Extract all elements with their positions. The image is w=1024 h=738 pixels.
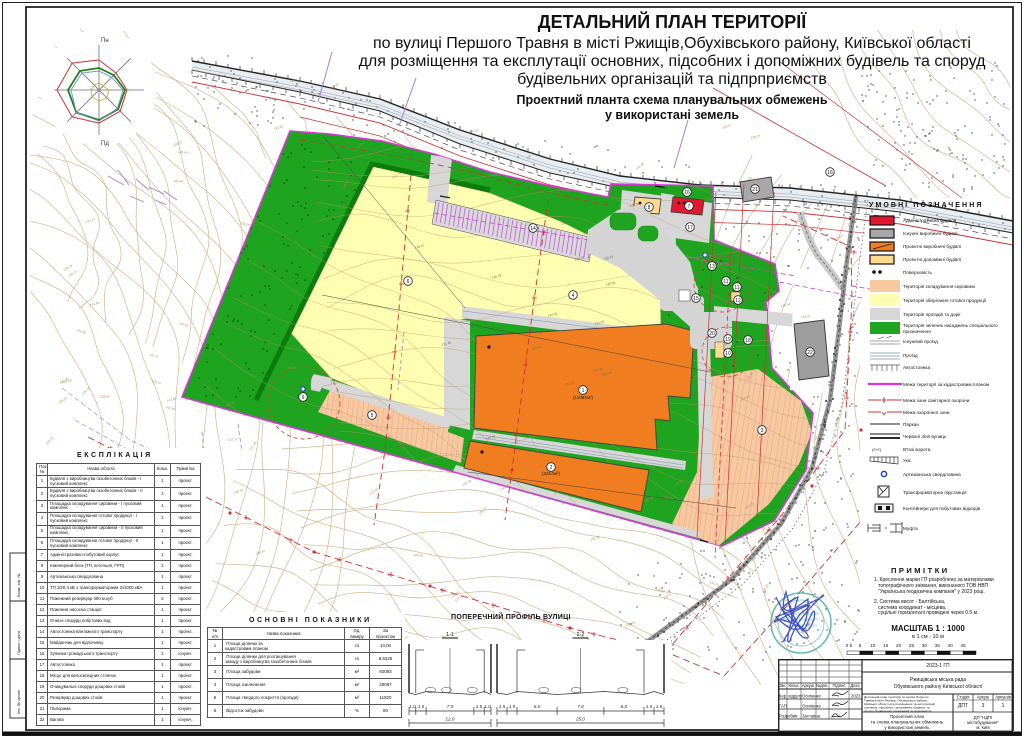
svg-text:Аркуш: Аркуш: [802, 683, 815, 688]
svg-text:137.21: 137.21: [149, 353, 160, 359]
svg-text:Територія проїздів та доріг: Територія проїздів та доріг: [903, 312, 961, 317]
svg-text:Підпис і дата: Підпис і дата: [16, 630, 21, 655]
svg-text:128.54: 128.54: [833, 233, 844, 242]
svg-text:132.30: 132.30: [368, 487, 379, 496]
svg-text:Територія складування сировини: Територія складування сировини: [903, 284, 975, 289]
svg-text:Зм.: Зм.: [779, 683, 786, 688]
svg-text:2: 2: [550, 465, 553, 471]
svg-text:1.5: 1.5: [656, 704, 663, 709]
svg-text:15: 15: [693, 296, 699, 302]
svg-text:137.75: 137.75: [228, 437, 238, 442]
svg-text:7.0: 7.0: [447, 704, 454, 709]
svg-text:Територія зберігання готової п: Територія зберігання готової продукції: [903, 298, 987, 303]
svg-text:Ржищівська міська рада: Ржищівська міська рада: [910, 677, 966, 683]
svg-text:140.77: 140.77: [68, 270, 79, 278]
svg-text:129.44: 129.44: [173, 179, 183, 184]
svg-text:м. Київ: м. Київ: [976, 725, 990, 730]
svg-text:129.73: 129.73: [63, 264, 74, 272]
svg-text:7.0: 7.0: [577, 704, 584, 709]
svg-text:4: 4: [572, 293, 575, 299]
svg-text:138.76: 138.76: [233, 488, 244, 495]
svg-text:В'їзні ворота: В'їзні ворота: [903, 447, 931, 452]
svg-text:Територія зелених насаджень сп: Територія зелених насаджень спеціального: [903, 323, 998, 328]
svg-text:129.14: 129.14: [151, 379, 162, 385]
svg-text:10: 10: [870, 643, 876, 649]
svg-text:Існуючі виробничі будівлі: Існуючі виробничі будівлі: [903, 231, 957, 236]
svg-text:Осипенко: Осипенко: [802, 704, 821, 709]
svg-text:22: 22: [807, 350, 813, 356]
svg-text:Адміністративна будівля: Адміністративна будівля: [903, 218, 957, 223]
svg-text:Контейнери для побутових відхо: Контейнери для побутових відходів: [903, 505, 981, 511]
svg-text:15: 15: [883, 643, 889, 649]
svg-text:Розробив: Розробив: [779, 714, 798, 719]
svg-text:ГАП: ГАП: [779, 704, 787, 709]
svg-text:Взам. інв. №: Взам. інв. №: [16, 574, 21, 597]
svg-text:13: 13: [709, 264, 715, 270]
svg-text:3: 3: [982, 703, 985, 709]
svg-text:1.0: 1.0: [409, 704, 416, 709]
svg-text:145.43: 145.43: [178, 150, 188, 155]
svg-text:Пд: Пд: [101, 141, 109, 147]
svg-text:6.0: 6.0: [621, 704, 628, 709]
svg-text:Трансформаторна підстанція: Трансформаторна підстанція: [903, 490, 967, 495]
svg-text:128.14: 128.14: [173, 139, 184, 147]
svg-text:133.61: 133.61: [721, 123, 732, 130]
svg-text:125.70: 125.70: [750, 134, 761, 140]
svg-text:6: 6: [407, 279, 410, 285]
svg-text:16: 16: [684, 190, 690, 196]
svg-text:споруд будівельних організацій: споруд будівельних організацій та підпри…: [864, 709, 932, 713]
svg-text:Пн: Пн: [101, 38, 109, 44]
svg-text:136.44: 136.44: [780, 302, 791, 308]
svg-text:142.49: 142.49: [165, 405, 176, 411]
svg-text:1.5: 1.5: [499, 704, 506, 709]
svg-text:133.58: 133.58: [76, 328, 87, 335]
svg-text:Стадія: Стадія: [957, 695, 970, 700]
svg-text:18: 18: [745, 338, 751, 344]
svg-text:Проектні допоміжні будівлі: Проектні допоміжні будівлі: [903, 257, 961, 262]
svg-text:17: 17: [687, 225, 693, 231]
svg-text:Межа території за кадастровим: Межа території за кадастровим планом: [903, 382, 989, 387]
svg-text:25.0: 25.0: [575, 717, 585, 722]
svg-text:Обухівського району Київської: Обухівського району Київської області: [894, 683, 983, 690]
svg-text:11: 11: [723, 279, 728, 285]
svg-text:Осипенко: Осипенко: [802, 694, 821, 699]
svg-text:138.34: 138.34: [255, 549, 266, 556]
svg-text:141.89: 141.89: [89, 301, 100, 307]
svg-text:у використані земель: у використані земель: [884, 725, 930, 730]
svg-text:16: 16: [827, 170, 833, 176]
svg-text:Існуючий проїзд: Існуючий проїзд: [903, 338, 938, 344]
svg-text:140.23: 140.23: [468, 128, 479, 134]
svg-text:1.0: 1.0: [484, 704, 491, 709]
svg-text:141.65: 141.65: [635, 161, 645, 171]
svg-text:133.57: 133.57: [100, 395, 110, 399]
svg-text:128.66: 128.66: [413, 553, 423, 558]
svg-text:127.18: 127.18: [249, 441, 258, 452]
svg-text:Проїзд: Проїзд: [903, 353, 918, 358]
svg-text:6.0: 6.0: [534, 704, 541, 709]
svg-text:1-1: 1-1: [446, 632, 454, 638]
svg-text:8: 8: [648, 205, 651, 211]
svg-text:19: 19: [725, 337, 731, 343]
svg-text:Межа зони санітарної охорони: Межа зони санітарної охорони: [903, 398, 970, 403]
svg-text:1: 1: [1002, 703, 1005, 709]
svg-text:(3314м²): (3314м²): [542, 471, 560, 476]
svg-text:(≡⎯≡): (≡⎯≡): [872, 447, 882, 452]
svg-text:142.61: 142.61: [179, 321, 190, 328]
svg-text:134.20: 134.20: [57, 396, 68, 405]
svg-text:14: 14: [530, 226, 536, 232]
svg-text:142.19: 142.19: [59, 377, 70, 385]
svg-text:2023: 2023: [851, 694, 861, 699]
svg-text:1: 1: [582, 388, 585, 394]
svg-text:143.17: 143.17: [85, 217, 96, 224]
svg-text:129.43: 129.43: [625, 620, 636, 627]
svg-text:40: 40: [948, 643, 954, 649]
svg-text:12.0: 12.0: [446, 717, 455, 722]
svg-text:Проектні виробничі будівлі: Проектні виробничі будівлі: [903, 244, 961, 249]
svg-text:1.5: 1.5: [418, 704, 425, 709]
svg-text:35: 35: [935, 643, 941, 649]
svg-text:№док.: №док.: [816, 683, 828, 688]
svg-text:11: 11: [734, 285, 739, 291]
svg-text:та схема планувальних обмежень: та схема планувальних обмежень: [871, 720, 944, 725]
svg-text:1.5: 1.5: [509, 704, 516, 709]
svg-text:Заставна: Заставна: [802, 714, 821, 719]
svg-text:Кер. відділу: Кер. відділу: [779, 694, 803, 699]
svg-text:Муфта: Муфта: [903, 526, 918, 531]
svg-text:3: 3: [761, 428, 764, 434]
svg-text:128.67: 128.67: [801, 314, 811, 319]
svg-text:0 5: 0 5: [846, 643, 853, 649]
svg-text:9: 9: [302, 395, 305, 401]
svg-text:20: 20: [709, 331, 715, 337]
svg-text:2023-1 ГП: 2023-1 ГП: [926, 663, 950, 669]
svg-text:1.5: 1.5: [646, 704, 653, 709]
svg-text:25: 25: [909, 643, 915, 649]
svg-text:133.32: 133.32: [273, 124, 284, 131]
svg-text:Аркуш: Аркуш: [977, 695, 990, 700]
svg-text:1.5: 1.5: [476, 704, 483, 709]
svg-text:20: 20: [896, 643, 902, 649]
svg-text:21: 21: [752, 187, 758, 193]
svg-text:143.89: 143.89: [166, 397, 177, 403]
svg-text:133.23: 133.23: [45, 436, 55, 446]
svg-text:142.35: 142.35: [462, 479, 473, 487]
svg-text:12: 12: [735, 298, 741, 304]
svg-text:Поверховість: Поверховість: [903, 270, 932, 275]
svg-text:Дата: Дата: [850, 683, 860, 688]
svg-text:(11092м²): (11092м²): [573, 395, 594, 400]
svg-text:Автостоянка: Автостоянка: [903, 365, 931, 370]
svg-text:5: 5: [371, 413, 374, 419]
svg-text:призначення: призначення: [903, 329, 931, 334]
svg-text:Укіс: Укіс: [903, 458, 912, 463]
svg-text:10: 10: [725, 351, 731, 357]
svg-text:30: 30: [922, 643, 928, 649]
svg-text:135.53: 135.53: [655, 587, 666, 594]
svg-text:145.89: 145.89: [286, 366, 296, 370]
svg-text:Кільк.: Кільк.: [789, 683, 800, 688]
svg-text:Проектний план: Проектний план: [890, 713, 925, 719]
svg-text:Інв. № оригін.: Інв. № оригін.: [16, 689, 21, 714]
svg-text:Межа охоронної зони: Межа охоронної зони: [903, 410, 950, 415]
svg-text:45: 45: [960, 643, 966, 649]
svg-text:2-2: 2-2: [577, 632, 585, 638]
svg-text:ДПТ: ДПТ: [958, 703, 968, 709]
svg-text:133.13: 133.13: [709, 580, 720, 587]
svg-text:Артезіанська свердловина: Артезіанська свердловина: [903, 472, 961, 477]
svg-text:130.71: 130.71: [478, 506, 488, 516]
svg-text:Аркушів: Аркушів: [995, 695, 1011, 700]
svg-text:139.82: 139.82: [761, 583, 770, 594]
svg-text:Червоні лінії вулиць: Червоні лінії вулиць: [903, 434, 947, 439]
svg-text:5: 5: [859, 643, 862, 649]
svg-text:Паркан: Паркан: [903, 422, 919, 427]
svg-text:Підпис: Підпис: [832, 683, 845, 688]
svg-text:7: 7: [688, 204, 691, 210]
